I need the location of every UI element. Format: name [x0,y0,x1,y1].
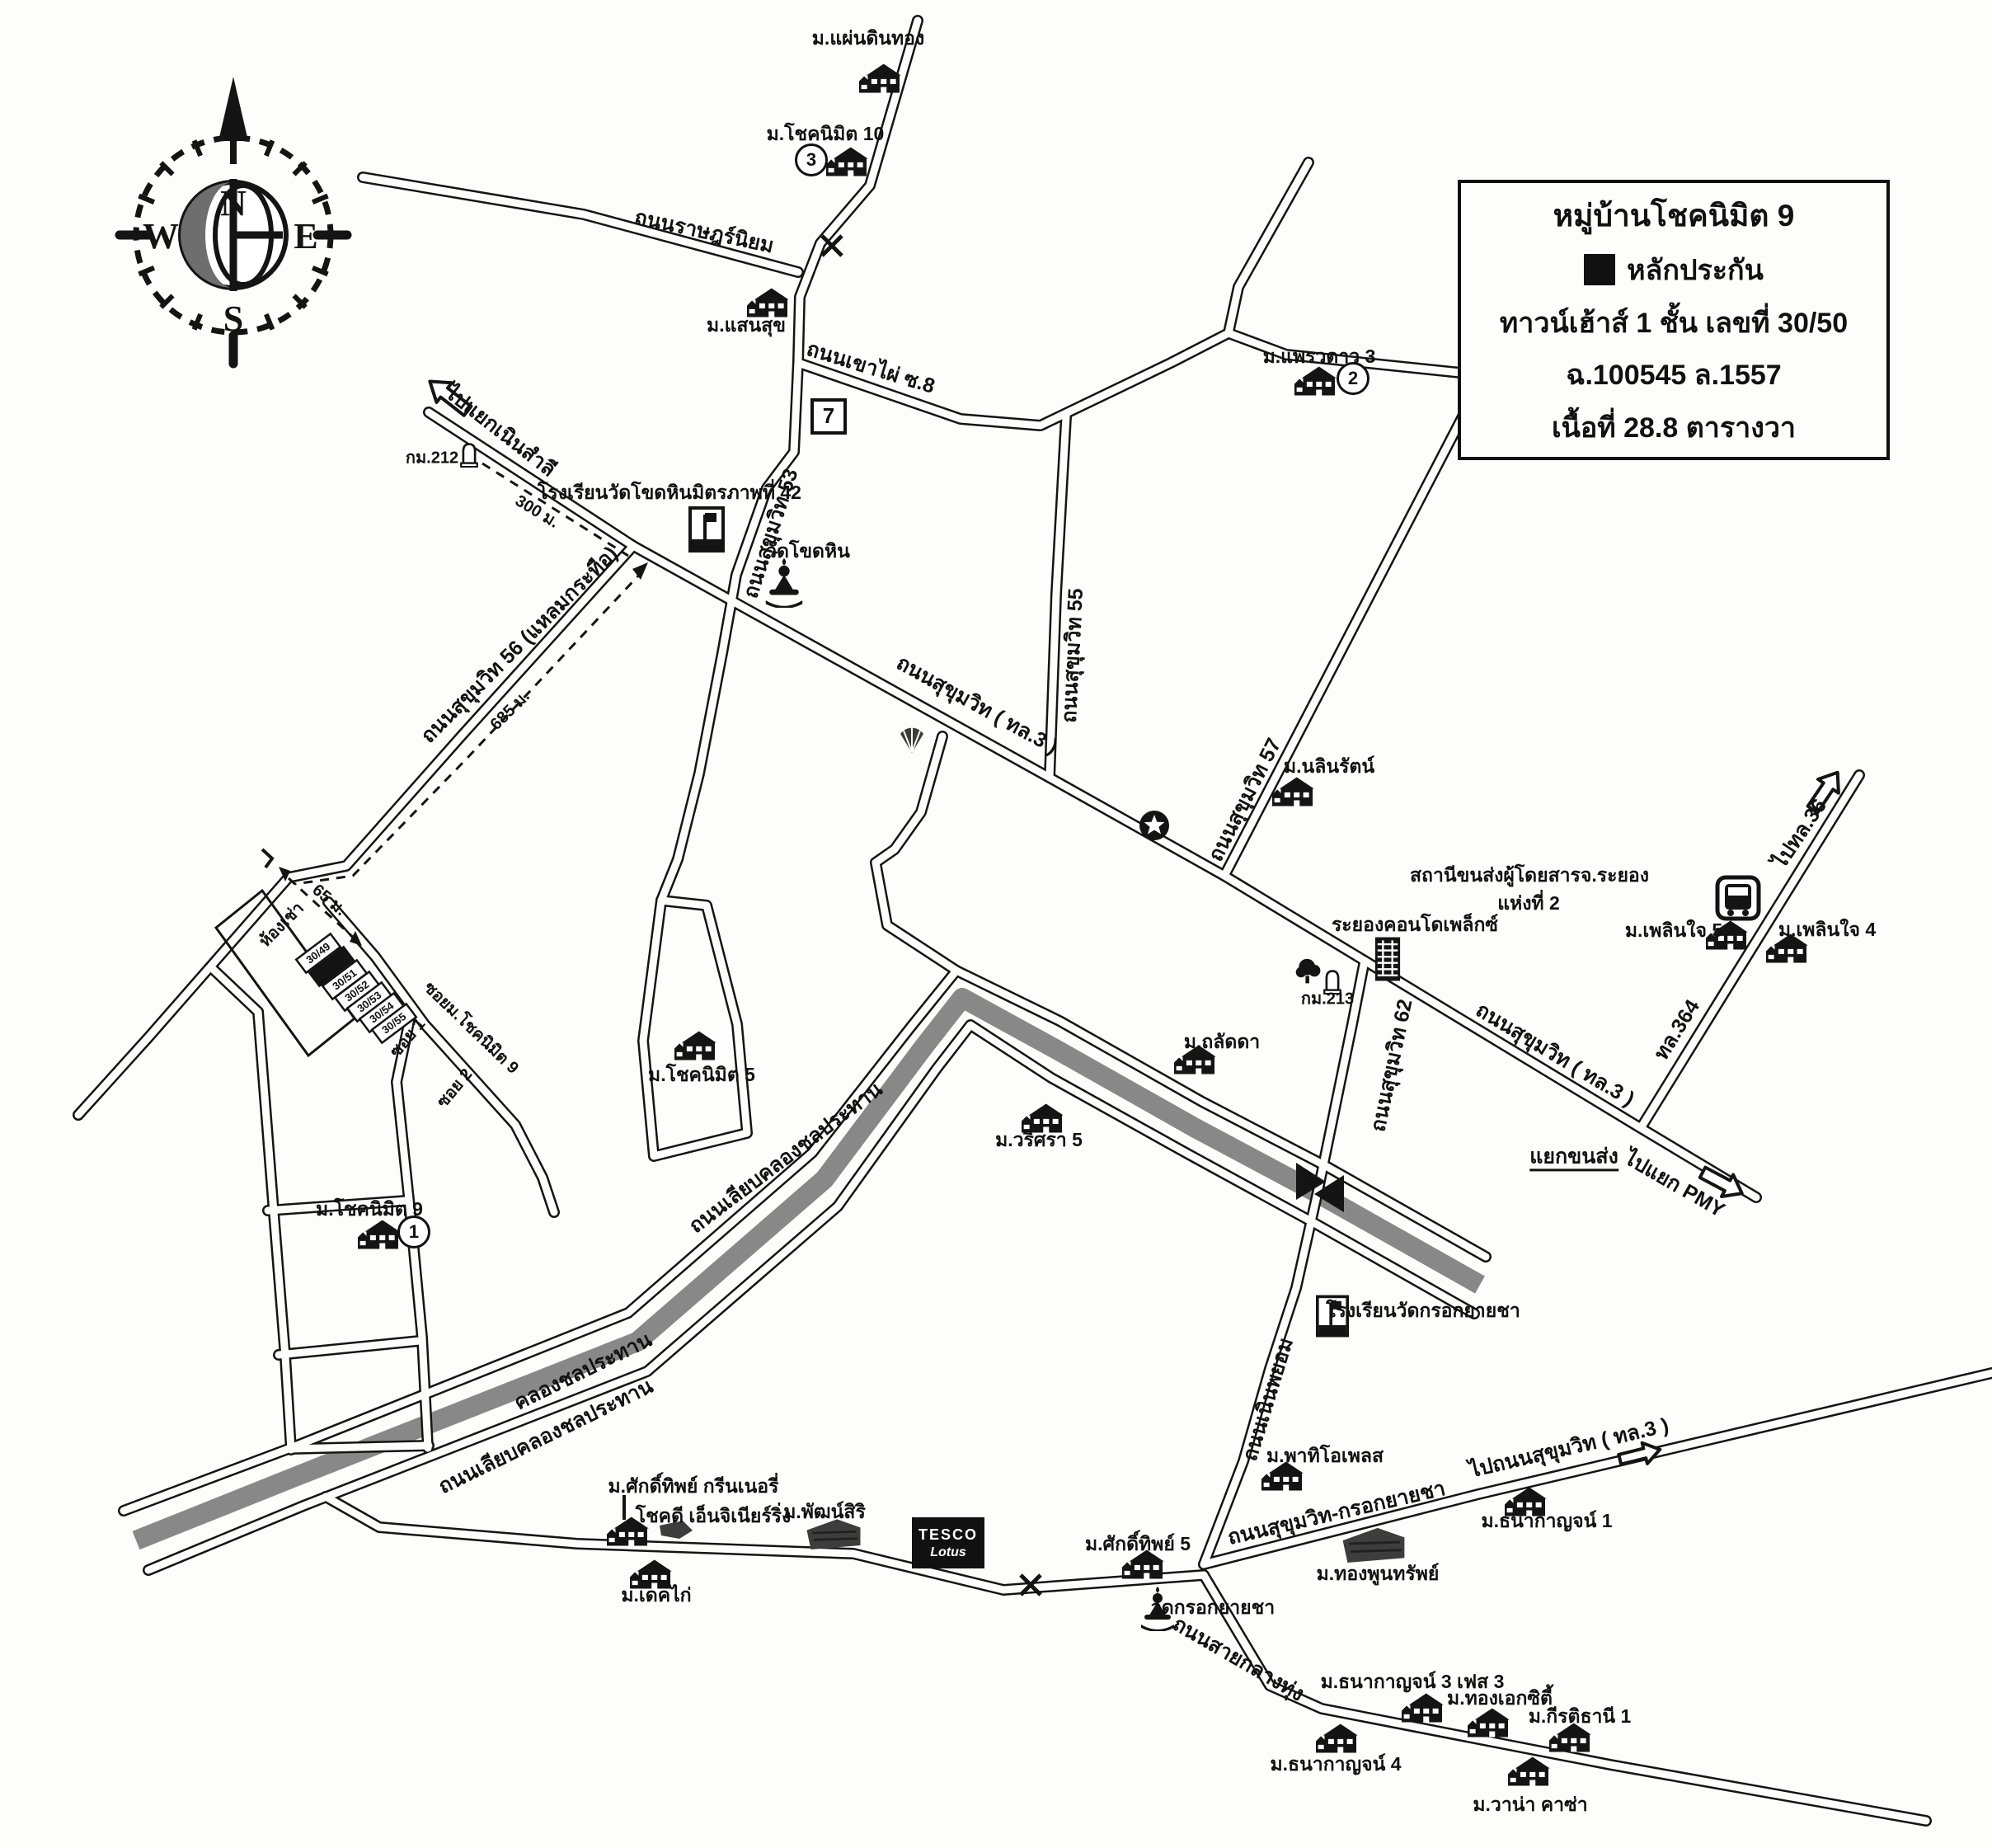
label-school-khodhin: โรงเรียนวัดโขดหินมิตรภาพที่ 42 [538,482,801,502]
label-village-thalatda: ม.ถลัดดา [1184,1032,1260,1051]
tesco-lotus-sign: TESCO Lotus [912,1517,984,1568]
label-village-sakthip-greenery: ม.ศักดิ์ทิพย์ กรีนเนอรี่ [608,1476,779,1496]
seven-eleven-digit: 7 [823,403,834,428]
label-village-warisara5: ม.วริศรา 5 [995,1130,1083,1150]
condo-building-icon [1375,938,1400,981]
compass-west-label: W [143,216,179,256]
house-icon [859,64,901,93]
house-icon [1316,1724,1358,1753]
label-condoplex: ระยองคอนโดเพล็กซ์ [1332,915,1498,934]
house-icon [1549,1723,1591,1752]
compass-rose: N S E W [120,77,347,364]
label-village-phaendinthong: ม.แผ่นดินทอง [812,28,924,48]
label-village-thongphunsap: ม.ทองพูนทรัพย์ [1317,1564,1440,1583]
house-icon [826,148,868,176]
marker-2: 2 [1337,362,1369,395]
legend-box: หมู่บ้านโชคนิมิต 9 หลักประกัน ทาวน์เฮ้าส… [1458,180,1890,460]
marker-3: 3 [795,143,828,176]
label-village-choknimit10: ม.โชคนิมิต 10 [767,124,885,143]
label-km212: กม.212 [406,450,458,468]
label-yaek-khonsong: แยกขนส่ง [1529,1145,1618,1171]
school-flag-icon [690,508,723,551]
collateral-marker-swatch [1584,254,1615,285]
house-icon [674,1032,716,1060]
map-page: { "legend": { "title": "หมู่บ้านโชคนิมิต… [0,0,1992,1848]
legend-line-area: เนื้อที่ 28.8 ตารางวา [1552,405,1796,449]
house-icon [1468,1709,1510,1737]
house-icon [1508,1757,1550,1786]
shell-gas-icon [900,727,923,753]
tesco-sign-line1: TESCO [914,1526,982,1544]
legend-line-address: ทาวน์เฮ้าส์ 1 ชั้น เลขที่ 30/50 [1500,300,1848,345]
label-village-phloenchai5: ม.เพลินใจ 5 [1625,920,1722,940]
km-milestone-icon [461,444,477,468]
star-gas-icon [1139,811,1169,840]
house-icon [747,289,789,317]
label-village-vana-casa: ม.วาน่า คาซ่า [1473,1794,1587,1814]
house-icon [1402,1694,1444,1723]
label-bus-terminal-line2: แห่งที่ 2 [1497,893,1560,913]
label-village-nalinrat: ม.นลินรัตน์ [1284,756,1374,776]
compass-north-label: N [220,183,247,223]
label-village-phraewdao3: ม.แพรวดาว 3 [1263,346,1376,366]
legend-marker-label: หลักประกัน [1627,247,1764,292]
label-village-patio-place: ม.พาทิโอเพลส [1266,1446,1384,1465]
tree-icon [1296,959,1321,984]
label-village-choknimit9: ม.โชคนิมิต 9 [316,1199,423,1219]
label-village-thanakan1: ม.ธนากาญจน์ 1 [1481,1511,1612,1531]
factory-building-icon [807,1519,861,1549]
label-village-sakthip5: ม.ศักดิ์ทิพย์ 5 [1085,1534,1191,1554]
seven-eleven-icon: 7 [810,398,847,435]
factory-building-icon [1343,1528,1405,1563]
label-km213: กม.213 [1301,991,1354,1009]
house-icon [1294,367,1337,396]
label-chokdee-engineering: โชคดี เอ็นจิเนียร์ริ่ง [636,1506,792,1526]
crossing-icon [822,236,1041,1595]
tesco-sign-line2: Lotus [914,1545,982,1560]
label-village-phloenchai4: ม.เพลินใจ 4 [1778,919,1876,939]
label-village-choknimit5: ม.โชคนิมิต 5 [648,1065,755,1084]
label-village-decca: ม.เดคไก่ [621,1585,691,1605]
marker-1: 1 [397,1216,430,1248]
label-bus-terminal-line1: สถานีขนส่งผู้โดยสารจ.ระยอง [1410,865,1649,885]
house-icon [358,1220,400,1249]
label-wat-krokyaicha: วัดกรอกยายชา [1151,1597,1275,1617]
label-village-phatsiri: ม.พัฒน์สิริ [783,1502,866,1521]
label-village-saensuk: ม.แสนสุข [707,315,786,335]
label-school-krokyaicha: โรงเรียนวัดกรอกยายชา [1326,1300,1520,1320]
compass-east-label: E [294,216,317,256]
legend-title: หมู่บ้านโชคนิมิต 9 [1553,191,1795,240]
legend-line-deed: ฉ.100545 ล.1557 [1566,352,1781,397]
bus-terminal-icon [1717,877,1759,919]
label-village-kiratithani1: ม.กีรติธานี 1 [1529,1706,1632,1726]
label-village-thanakan4: ม.ธนากาญจน์ 4 [1270,1754,1401,1774]
compass-south-label: S [223,299,243,339]
